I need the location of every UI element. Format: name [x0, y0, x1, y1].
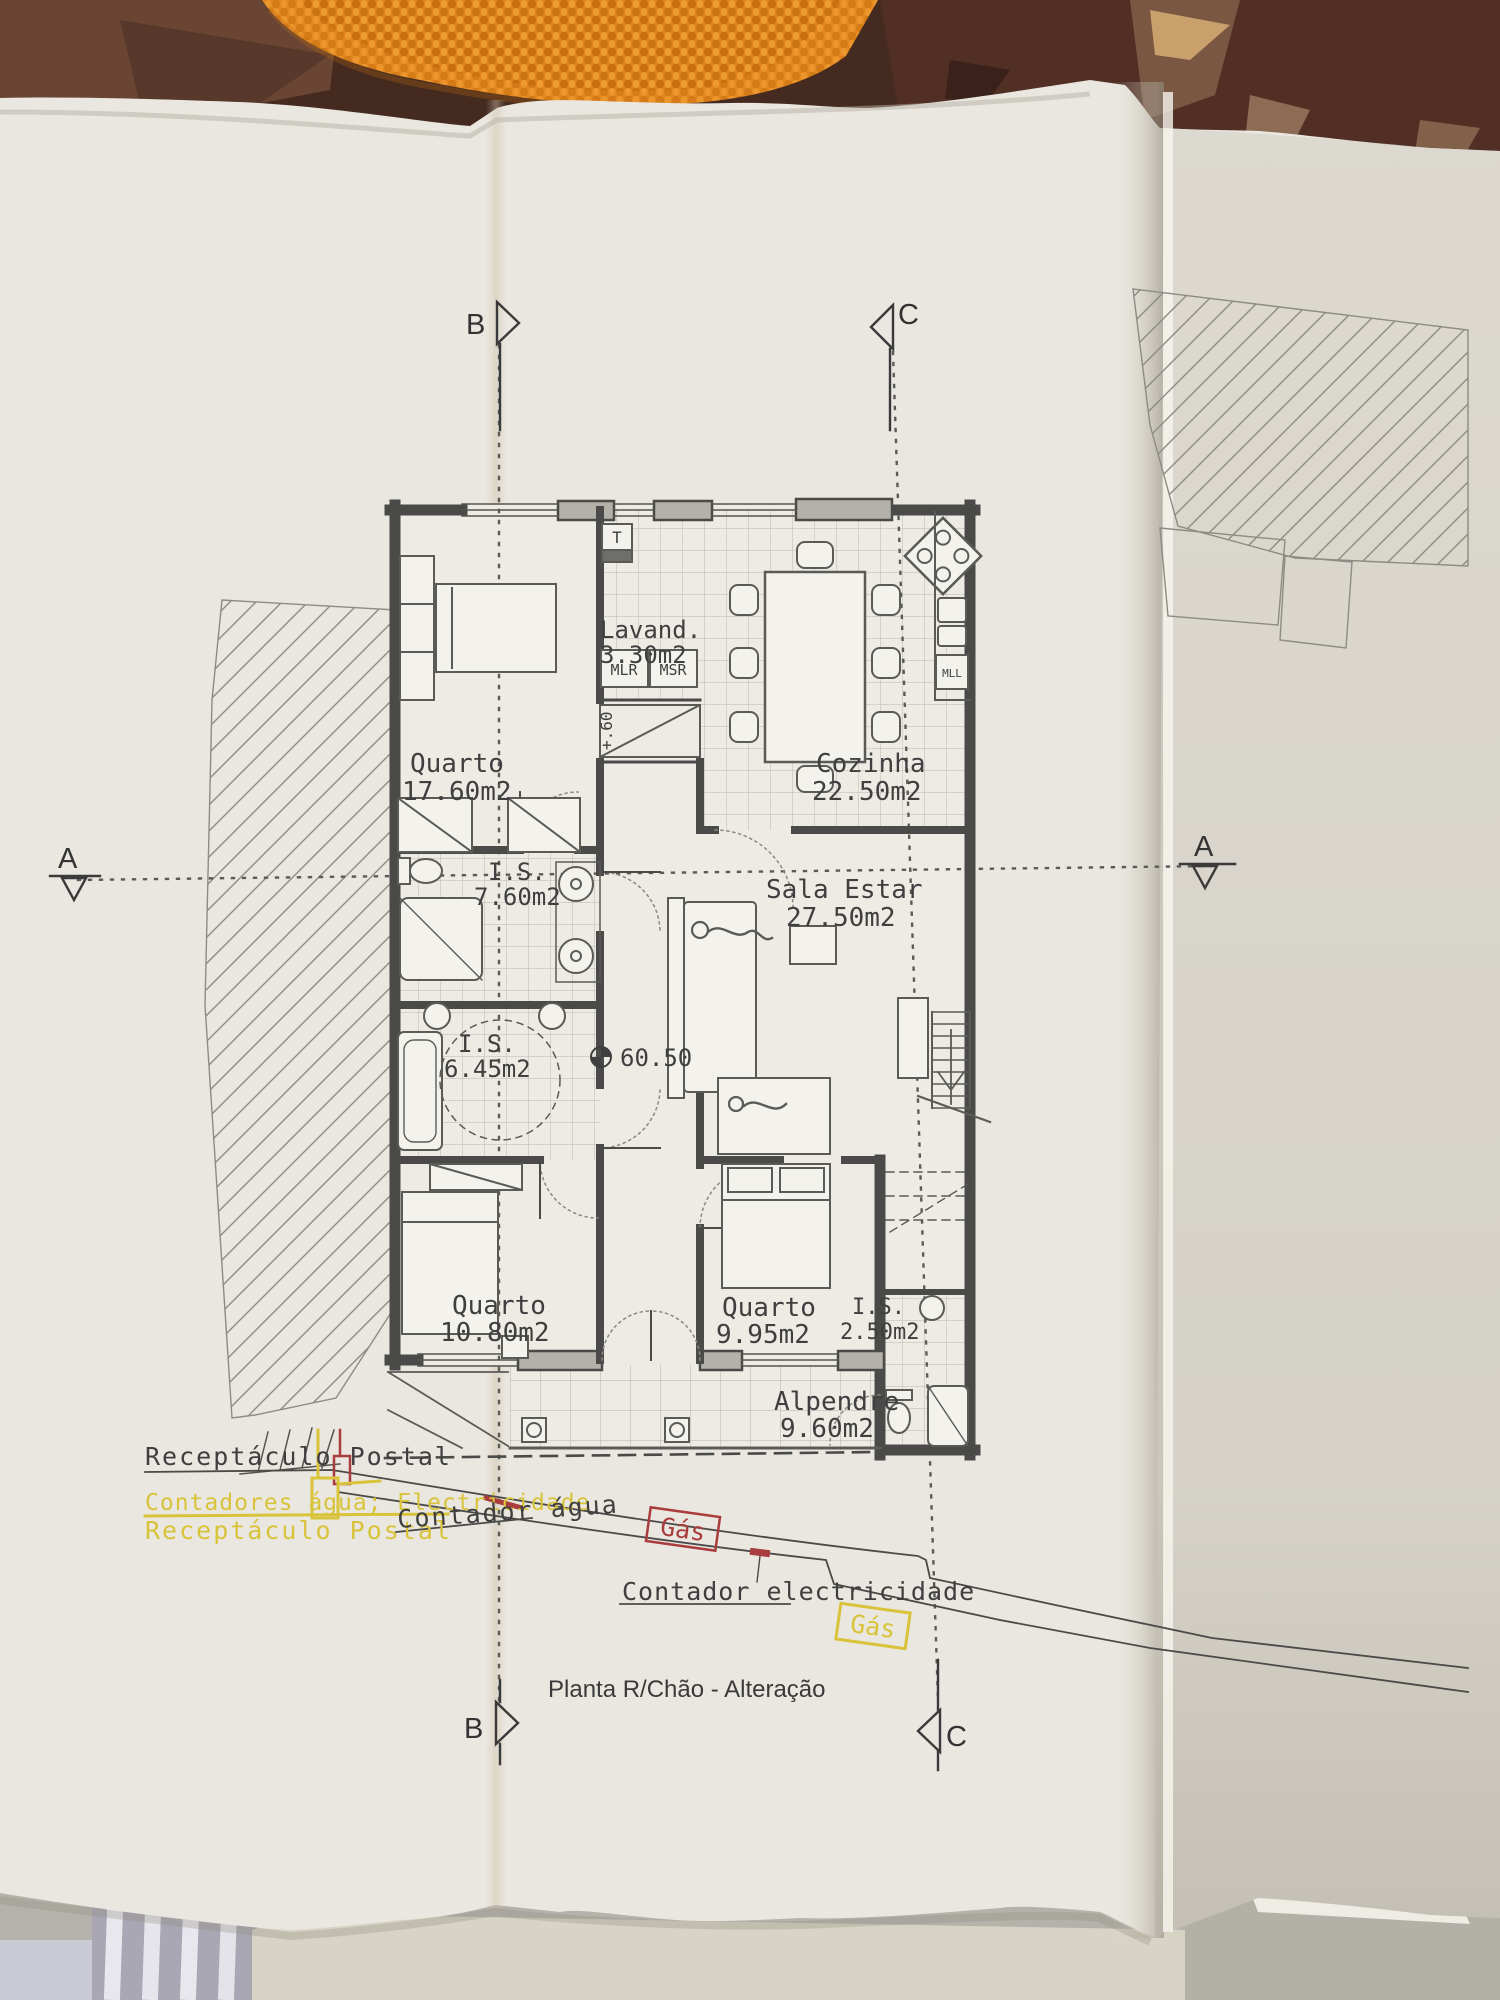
toilet-icon — [424, 1003, 450, 1029]
section-letter-a-right: A — [1194, 831, 1214, 863]
hatched-neighbor-topright — [1133, 289, 1468, 566]
step-level-label: +.60 — [597, 711, 616, 750]
section-letter-b-top: B — [466, 309, 485, 341]
photo-of-floor-plan: Gás Gás B C A A B C Quarto 17.60m2 Lava — [0, 0, 1500, 2000]
room-label-is3: I.S. — [852, 1295, 905, 1320]
washer-label: MLR — [610, 661, 638, 679]
level-marker — [591, 1047, 611, 1067]
section-letter-c-top: C — [898, 299, 919, 331]
annotation-electric-meter: Contador electricidade — [622, 1577, 975, 1606]
room-label-cozinha: Cozinha — [816, 749, 926, 779]
washbasin-icon — [559, 939, 593, 973]
room-area-is2: 6.45m2 — [444, 1055, 531, 1083]
room-label-alpendre: Alpendre — [774, 1387, 899, 1417]
bedroom3-furniture — [722, 1164, 830, 1288]
plan-title: Planta R/Chão - Alteração — [548, 1676, 826, 1703]
room-label-quarto3: Quarto — [722, 1293, 816, 1323]
level-value: 60.50 — [620, 1044, 692, 1072]
room-area-alpendre: 9.60m2 — [780, 1414, 874, 1444]
room-label-sala: Sala Estar — [766, 875, 923, 905]
toilet-icon — [410, 859, 442, 883]
washbasin-icon — [920, 1296, 944, 1320]
room-area-quarto3: 9.95m2 — [716, 1320, 810, 1350]
section-letter-a-left: A — [58, 843, 78, 875]
bidet-icon — [539, 1003, 565, 1029]
annotation-postal-black: Receptáculo Postal — [145, 1442, 452, 1471]
heater-label: T — [612, 528, 622, 547]
room-area-cozinha: 22.50m2 — [812, 777, 922, 807]
room-area-sala: 27.50m2 — [786, 903, 896, 933]
room-area-quarto2: 10.80m2 — [440, 1318, 550, 1348]
section-letter-c-bottom: C — [946, 1721, 967, 1753]
dishwasher-label: MLL — [942, 667, 962, 680]
room-label-lavandaria: Lavand. — [600, 616, 701, 644]
sink-icon — [938, 598, 966, 622]
room-label-is2: I.S. — [458, 1030, 516, 1058]
hatched-neighbor-left — [205, 600, 396, 1418]
section-letter-b-bottom: B — [464, 1713, 483, 1745]
washbasin-icon — [559, 867, 593, 901]
dryer-label: MSR — [659, 661, 687, 679]
room-area-is1: 7.60m2 — [474, 883, 561, 911]
room-label-is1: I.S. — [488, 858, 546, 886]
room-area-quarto1: 17.60m2 — [402, 777, 512, 807]
floor-corner — [0, 1940, 100, 2000]
room-area-is3: 2.50m2 — [840, 1320, 919, 1345]
room-label-quarto2: Quarto — [452, 1291, 546, 1321]
room-label-quarto1: Quarto — [410, 749, 504, 779]
